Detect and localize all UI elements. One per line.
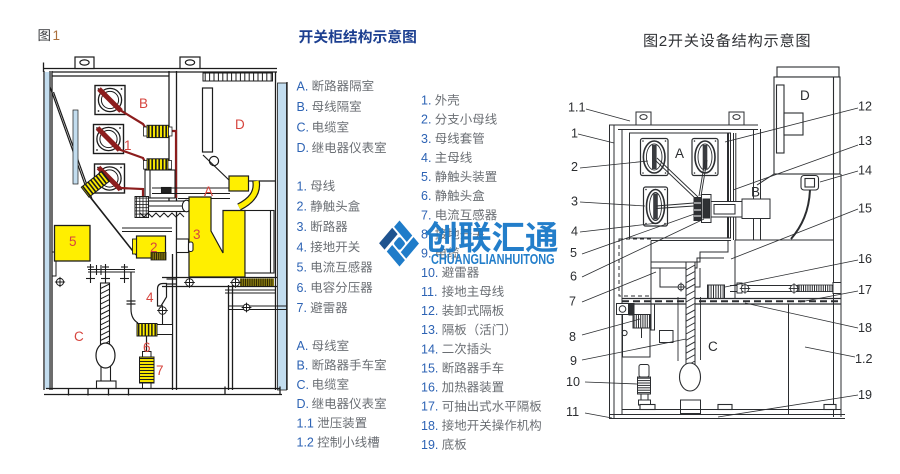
svg-text:1: 1 xyxy=(571,127,578,141)
svg-text:3.: 3. xyxy=(421,132,431,146)
svg-text:13.: 13. xyxy=(421,323,438,337)
svg-text:19: 19 xyxy=(858,388,872,402)
svg-text:14: 14 xyxy=(858,164,872,178)
svg-text:2: 2 xyxy=(571,160,578,174)
svg-text:C.: C. xyxy=(297,378,310,392)
svg-text:5: 5 xyxy=(69,234,77,249)
svg-text:2: 2 xyxy=(659,33,667,50)
svg-text:B.: B. xyxy=(297,100,309,114)
svg-text:4: 4 xyxy=(146,290,154,305)
svg-text:9: 9 xyxy=(570,354,577,368)
svg-text:A: A xyxy=(675,146,684,161)
svg-text:1: 1 xyxy=(53,28,61,43)
svg-text:14.: 14. xyxy=(421,342,438,356)
svg-text:C: C xyxy=(708,339,718,354)
svg-text:B: B xyxy=(139,96,148,111)
svg-text:7: 7 xyxy=(156,363,164,378)
svg-text:6: 6 xyxy=(570,270,577,284)
svg-text:7.: 7. xyxy=(421,208,431,222)
svg-text:6.: 6. xyxy=(421,189,431,203)
svg-text:13: 13 xyxy=(858,134,872,148)
svg-text:C: C xyxy=(74,329,84,344)
svg-text:1.: 1. xyxy=(421,94,431,108)
svg-text:D: D xyxy=(800,88,810,103)
svg-text:17.: 17. xyxy=(421,400,438,414)
svg-text:D.: D. xyxy=(297,141,310,155)
svg-text:11.: 11. xyxy=(421,285,437,299)
svg-text:1.2: 1.2 xyxy=(297,436,314,450)
svg-text:A.: A. xyxy=(297,79,309,93)
svg-text:1.1: 1.1 xyxy=(568,101,586,115)
svg-text:17: 17 xyxy=(858,283,872,297)
svg-text:10: 10 xyxy=(566,375,580,389)
svg-text:B: B xyxy=(751,185,760,200)
svg-text:4.: 4. xyxy=(421,151,431,165)
svg-text:1.: 1. xyxy=(297,179,307,193)
svg-text:3: 3 xyxy=(571,195,578,209)
svg-text:18: 18 xyxy=(858,321,872,335)
svg-text:15.: 15. xyxy=(421,361,438,375)
svg-text:2: 2 xyxy=(150,240,158,255)
svg-text:1: 1 xyxy=(124,138,132,153)
svg-text:2.: 2. xyxy=(297,200,307,214)
svg-text:16.: 16. xyxy=(421,381,438,395)
svg-text:D: D xyxy=(235,117,245,132)
svg-text:4: 4 xyxy=(571,225,578,239)
svg-text:19.: 19. xyxy=(421,438,438,452)
svg-text:3.: 3. xyxy=(297,220,307,234)
svg-text:18.: 18. xyxy=(421,419,438,433)
svg-text:D.: D. xyxy=(297,397,310,411)
svg-text:6.: 6. xyxy=(297,281,307,295)
svg-text:12: 12 xyxy=(858,100,872,114)
svg-text:7.: 7. xyxy=(297,301,307,315)
svg-text:A.: A. xyxy=(297,339,309,353)
svg-text:2.: 2. xyxy=(421,113,431,127)
svg-text:10.: 10. xyxy=(421,266,438,280)
svg-text:3: 3 xyxy=(193,227,201,242)
svg-text:C.: C. xyxy=(297,121,310,135)
svg-text:1.2: 1.2 xyxy=(855,352,873,366)
svg-text:A: A xyxy=(204,184,213,199)
svg-text:5.: 5. xyxy=(297,261,307,275)
svg-text:6: 6 xyxy=(143,340,151,355)
svg-text:5.: 5. xyxy=(421,170,431,184)
svg-text:8: 8 xyxy=(569,330,576,344)
svg-text:4.: 4. xyxy=(297,240,307,254)
svg-text:11: 11 xyxy=(566,405,579,419)
svg-text:5: 5 xyxy=(570,246,577,260)
svg-text:1.1: 1.1 xyxy=(297,416,314,430)
svg-text:B.: B. xyxy=(297,359,309,373)
svg-text:CHUANGLIANHUITONG: CHUANGLIANHUITONG xyxy=(431,250,555,267)
svg-text:12.: 12. xyxy=(421,304,438,318)
svg-text:15: 15 xyxy=(858,202,872,216)
svg-text:16: 16 xyxy=(858,252,872,266)
svg-text:7: 7 xyxy=(569,295,576,309)
